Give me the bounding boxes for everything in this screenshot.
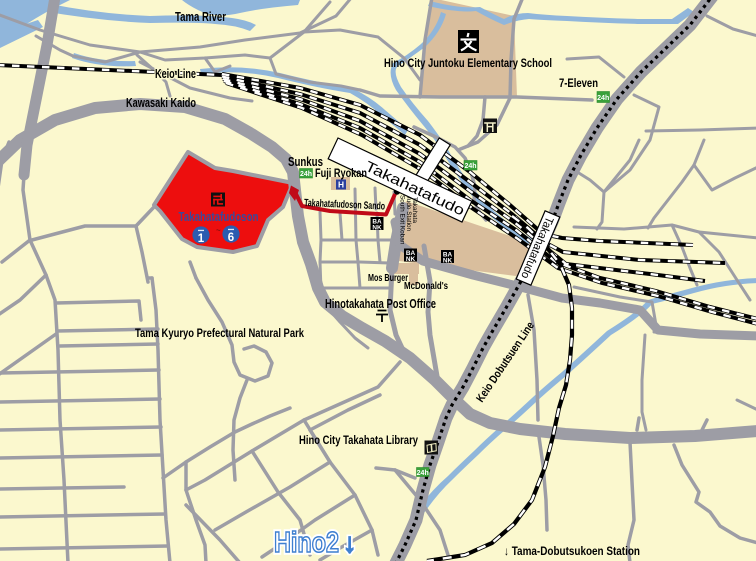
svg-text:NK: NK [372,225,382,232]
svg-text:NK: NK [406,256,416,263]
svg-text:24h: 24h [300,171,312,178]
svg-text:Hino City Juntoku Elementary S: Hino City Juntoku Elementary School [384,56,552,70]
svg-text:24h: 24h [597,95,609,102]
svg-text:Hinotakahata Post Office: Hinotakahata Post Office [325,297,436,311]
svg-text:Kawasaki Kaido: Kawasaki Kaido [126,96,196,110]
svg-text:1: 1 [198,233,205,245]
svg-text:24h: 24h [464,163,476,170]
svg-text:South Exit Koban: South Exit Koban [399,195,406,245]
svg-text:Hino2: Hino2 [274,527,339,559]
svg-text:6: 6 [228,232,234,244]
svg-text:H: H [338,180,344,190]
svg-text:7-Eleven: 7-Eleven [559,76,598,90]
svg-text:NK: NK [443,258,453,265]
svg-text:Hino City Takahata Library: Hino City Takahata Library [299,433,418,447]
svg-text:↓ Tama-Dobutsukoen Station: ↓ Tama-Dobutsukoen Station [504,544,640,558]
svg-text:Fuji Ryokan: Fuji Ryokan [315,166,367,180]
svg-text:Tama River: Tama River [175,10,226,24]
svg-text:McDonald's: McDonald's [404,281,448,292]
svg-text:24h: 24h [417,470,429,477]
svg-text:Keio Line: Keio Line [155,67,196,81]
svg-text:Tama Kyuryo Prefectural Natura: Tama Kyuryo Prefectural Natural Park [135,326,304,340]
svg-text:↓: ↓ [343,528,357,558]
svg-text:~: ~ [216,226,221,235]
svg-text:Takahatafudoson: Takahatafudoson [179,210,259,224]
svg-text:Mos Burger: Mos Burger [368,273,408,284]
